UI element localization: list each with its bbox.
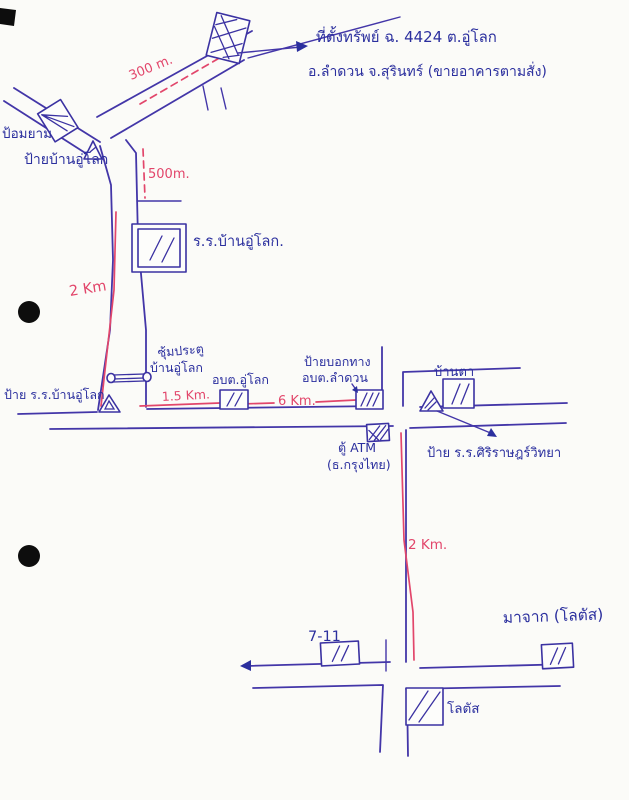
map-drawing: ที่ตั้งทรัพย์ ฉ. 4424 ต.อู่โลก อ.ลำดวน จ…	[0, 0, 629, 800]
road-stub-right	[221, 88, 226, 109]
village-gate-icon	[107, 373, 151, 383]
ban-ta-icon	[420, 379, 474, 411]
labels: ที่ตั้งทรัพย์ ฉ. 4424 ต.อู่โลก อ.ลำดวน จ…	[2, 26, 604, 717]
distance-300m-label: 300 m.	[127, 53, 175, 84]
atm-icon	[367, 423, 390, 441]
property-box-icon	[206, 13, 250, 64]
road-bottom-bottom-left	[253, 685, 383, 752]
red-line-1-5km	[140, 403, 220, 406]
note-line1: ที่ตั้งทรัพย์ ฉ. 4424 ต.อู่โลก	[316, 26, 497, 46]
gate-label-line1: ซุ้มประตู	[157, 341, 204, 361]
distance-6km-label: 6 Km.	[278, 394, 316, 409]
atm-label-line2: (ธ.กรุงไทย)	[327, 457, 391, 473]
from-lotus-label: มาจาก (โลตัส)	[503, 606, 604, 627]
distance-2km-left-label: 2 Km	[68, 278, 108, 300]
siri-sign-arrow-icon	[437, 411, 497, 437]
atm-label-line1: ตู้ ATM	[338, 440, 376, 456]
gate-label-line2: บ้านอู่โลก	[150, 360, 203, 376]
hole-punch-top	[18, 301, 40, 323]
school-sign-label: ป้าย ร.ร.บ้านอู่โลก	[4, 387, 105, 403]
road-vertical-right	[126, 140, 146, 407]
red-line-500m	[143, 149, 145, 198]
arrowhead-bottom-road-icon	[240, 660, 251, 671]
direction-sign-label-line1: ป้ายบอกทาง	[304, 354, 371, 369]
distance-500m-label: 500m.	[148, 167, 190, 182]
direction-sign-icon	[356, 390, 383, 409]
distance-1-5km-label: 1.5 Km.	[161, 386, 210, 404]
corner-mark	[0, 8, 16, 26]
road-main-bottom	[50, 423, 566, 429]
road-stub-left	[203, 86, 208, 110]
guard-post-label: ป้อมยาม	[2, 126, 52, 142]
road-bottom-top-left	[246, 662, 390, 666]
lotus-icon	[406, 688, 443, 725]
seven-eleven-label: 7-11	[308, 629, 341, 645]
school-ban-ulok-icon	[132, 224, 186, 272]
ban-ta-label: บ้านตา	[434, 365, 474, 380]
scanned-map-page: ที่ตั้งทรัพย์ ฉ. 4424 ต.อู่โลก อ.ลำดวน จ…	[0, 0, 629, 800]
right-road-box-icon	[541, 643, 573, 669]
note-line2: อ.ลำดวน จ.สุรินทร์ (ขายอาคารตามสั่ง)	[308, 62, 547, 80]
school-label: ร.ร.บ้านอู่โลก.	[193, 232, 284, 250]
siri-school-sign-label: ป้าย ร.ร.ศิริราษฎร์วิทยา	[427, 445, 561, 461]
hole-punch-bottom	[18, 545, 40, 567]
direction-sign-arrow-icon	[352, 384, 358, 393]
sao-ulok-icon	[220, 390, 248, 409]
distance-2km-right-label: 2 Km.	[408, 537, 447, 553]
sao-ulok-label: อบต.อู่โลก	[212, 372, 269, 388]
lotus-label: โลตัส	[447, 700, 480, 717]
direction-sign-label-line2: อบต.ลำดวน	[302, 370, 368, 385]
village-sign-label: ป้ายบ้านอู่โลก	[24, 151, 108, 168]
